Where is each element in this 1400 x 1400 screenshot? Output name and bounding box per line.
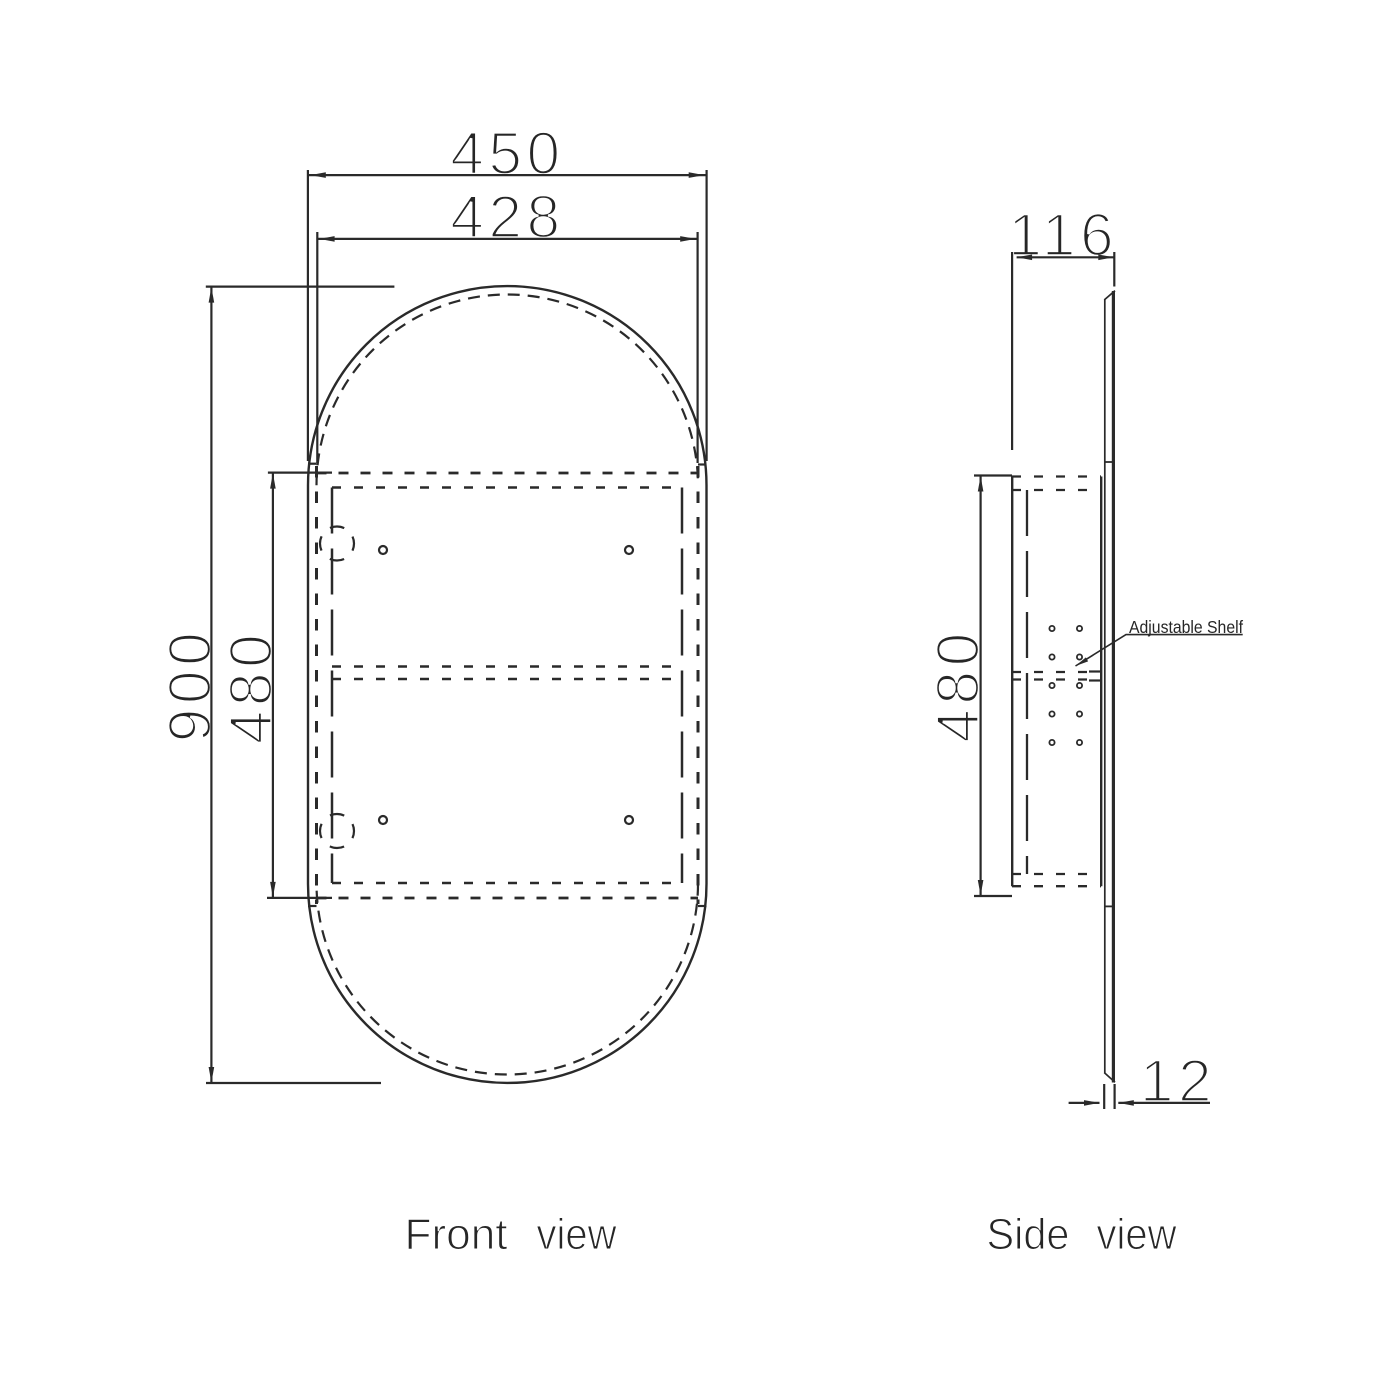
svg-text:view: view [1097,1211,1178,1259]
svg-text:450: 450 [450,119,564,187]
svg-text:Front: Front [405,1211,508,1259]
svg-text:view: view [537,1211,618,1259]
svg-text:480: 480 [217,630,285,744]
svg-text:12: 12 [1140,1047,1216,1115]
svg-text:900: 900 [156,628,224,742]
svg-text:Side: Side [987,1211,1070,1259]
svg-text:428: 428 [450,183,564,251]
